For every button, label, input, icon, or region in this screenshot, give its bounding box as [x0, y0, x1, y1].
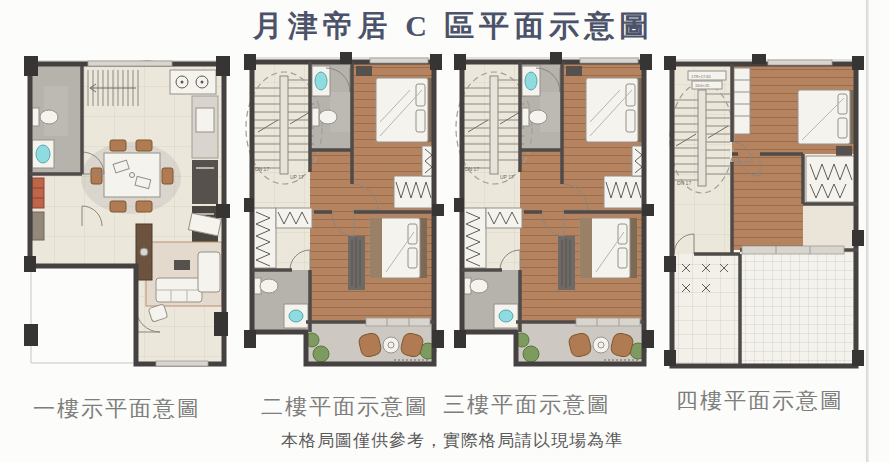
pillow — [838, 118, 847, 138]
pillow — [626, 110, 635, 132]
walk-in-closet — [462, 208, 486, 268]
toilet — [319, 110, 337, 124]
floor-2-label: 二樓平面示意圖 — [261, 392, 429, 422]
nightstand — [566, 66, 582, 76]
floor-4-drawing: 17R×17.65 16G×25 DN 17 — [664, 54, 864, 376]
headboard — [420, 218, 427, 278]
page-fold-edge — [866, 0, 869, 462]
floorplan-sheet: 月津帝居 C 區平面示意圖 — [0, 0, 889, 462]
dining-chair — [162, 168, 173, 184]
floorplan-4: 17R×17.65 16G×25 DN 17 — [664, 54, 864, 380]
floor-2-drawing: DN 17 UP 17 — [244, 52, 448, 378]
floorplan-2: DN 17 UP 17 — [244, 52, 448, 382]
storage-room-floor — [672, 254, 740, 364]
dining-chair — [136, 140, 152, 151]
sink-icon — [499, 310, 513, 322]
terrace-floor — [740, 250, 858, 364]
window — [370, 58, 428, 63]
dining-table — [104, 153, 160, 197]
stair-up-label: UP 17 — [290, 174, 304, 180]
dining-chair — [110, 140, 126, 151]
coffee-table — [174, 260, 190, 270]
pillow — [416, 110, 425, 132]
disclaimer-caption: 本格局圖僅供參考，實際格局請以現場為準 — [281, 429, 623, 452]
kitchen-sink — [196, 108, 214, 132]
page-title: 月津帝居 C 區平面示意圖 — [0, 6, 889, 47]
bed-throw — [580, 218, 592, 278]
stair-down-label: DN 17 — [255, 166, 269, 172]
pillow — [838, 94, 847, 114]
sink-icon — [525, 72, 537, 90]
toilet — [470, 279, 488, 293]
toilet — [40, 110, 58, 124]
walk-in-closet — [252, 208, 276, 268]
shelf-cabinet — [32, 178, 44, 208]
outdoor-table — [383, 337, 399, 353]
storage-cabinet — [32, 212, 44, 240]
wardrobe — [806, 156, 856, 202]
wardrobe — [604, 176, 644, 208]
oven — [192, 160, 218, 204]
toilet — [260, 279, 278, 293]
stair-riser-label: 17R×17.65 — [691, 74, 711, 79]
dining-chair — [110, 201, 126, 212]
sink-icon — [289, 310, 303, 322]
sliding-door — [366, 318, 430, 326]
floor-4-label: 四樓平面示意圖 — [676, 386, 844, 416]
sliding-door — [576, 318, 640, 326]
stove — [170, 70, 216, 94]
pillow — [618, 248, 627, 268]
sliding-door — [742, 246, 844, 254]
stair-down-label: DN 17 — [677, 180, 691, 186]
floorplan-3: DN 17 UP 17 — [454, 52, 658, 382]
sink-icon — [315, 72, 327, 90]
plant-icon — [313, 346, 329, 362]
entry-window — [156, 361, 208, 366]
stair-tread-label: 16G×25 — [695, 83, 710, 88]
window — [88, 61, 172, 66]
bed-throw — [370, 218, 382, 278]
toilet — [529, 110, 547, 124]
pillow — [408, 248, 417, 268]
plant-icon — [523, 346, 539, 362]
window — [768, 60, 832, 65]
floor-1-label: 一樓示平面意圖 — [33, 394, 201, 424]
outdoor-table — [593, 337, 609, 353]
stair-down-label: DN 17 — [465, 166, 479, 172]
sofa-chaise — [198, 252, 220, 292]
dining-chair — [136, 201, 152, 212]
headboard — [630, 218, 637, 278]
floor-3-drawing: DN 17 UP 17 — [454, 52, 658, 378]
dining-chair — [91, 168, 102, 184]
wardrobe — [394, 176, 434, 208]
floor-1-drawing — [24, 56, 230, 372]
window — [580, 58, 638, 63]
nightstand — [356, 66, 372, 76]
bookshelf — [734, 68, 750, 134]
sink-icon — [36, 145, 50, 163]
floorplan-1 — [24, 56, 230, 376]
floor-3-label: 三樓平面示意圖 — [443, 390, 611, 420]
toilet-tank — [32, 108, 39, 126]
stair-up-label: UP 17 — [500, 174, 514, 180]
